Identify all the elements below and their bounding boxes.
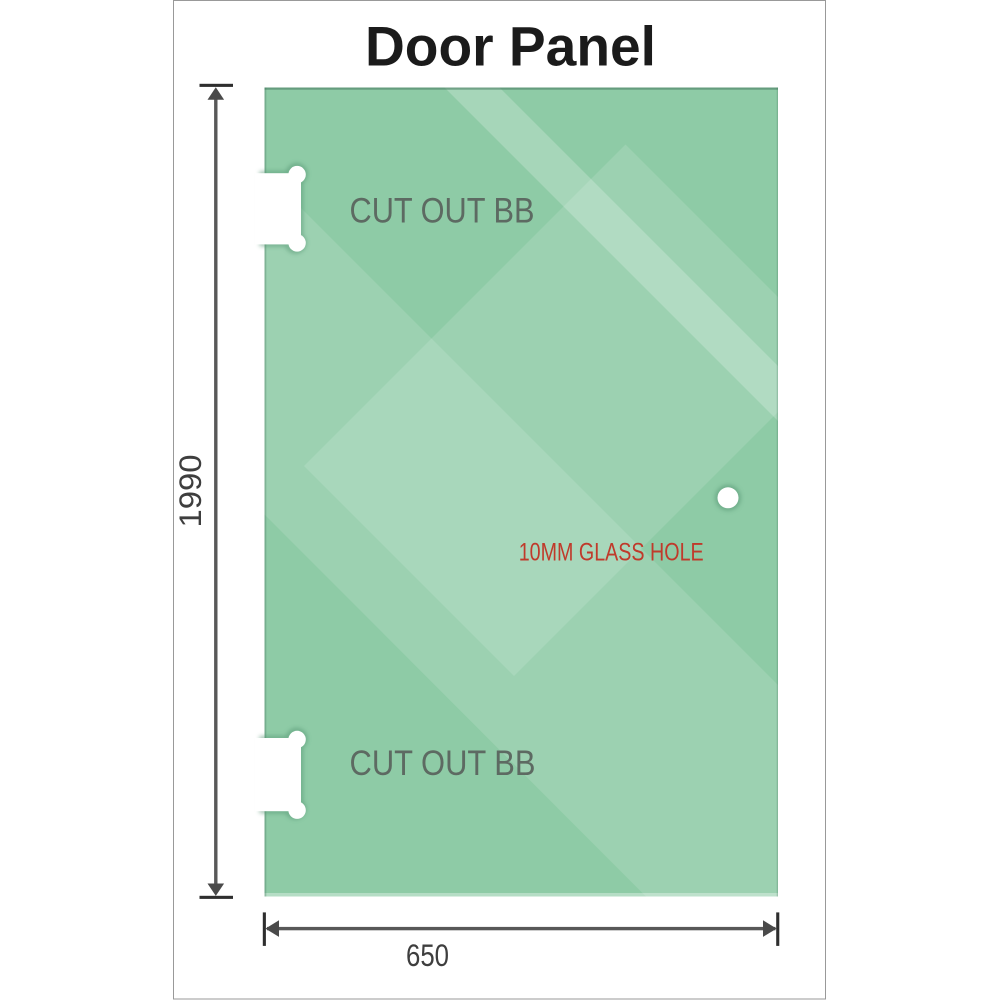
svg-text:CUT OUT BB: CUT OUT BB [350, 192, 535, 231]
svg-text:10MM GLASS HOLE: 10MM GLASS HOLE [519, 539, 704, 567]
svg-text:CUT OUT BB: CUT OUT BB [350, 744, 536, 783]
svg-text:1990: 1990 [172, 455, 208, 528]
svg-text:Door Panel: Door Panel [365, 15, 656, 78]
svg-text:650: 650 [406, 937, 449, 973]
